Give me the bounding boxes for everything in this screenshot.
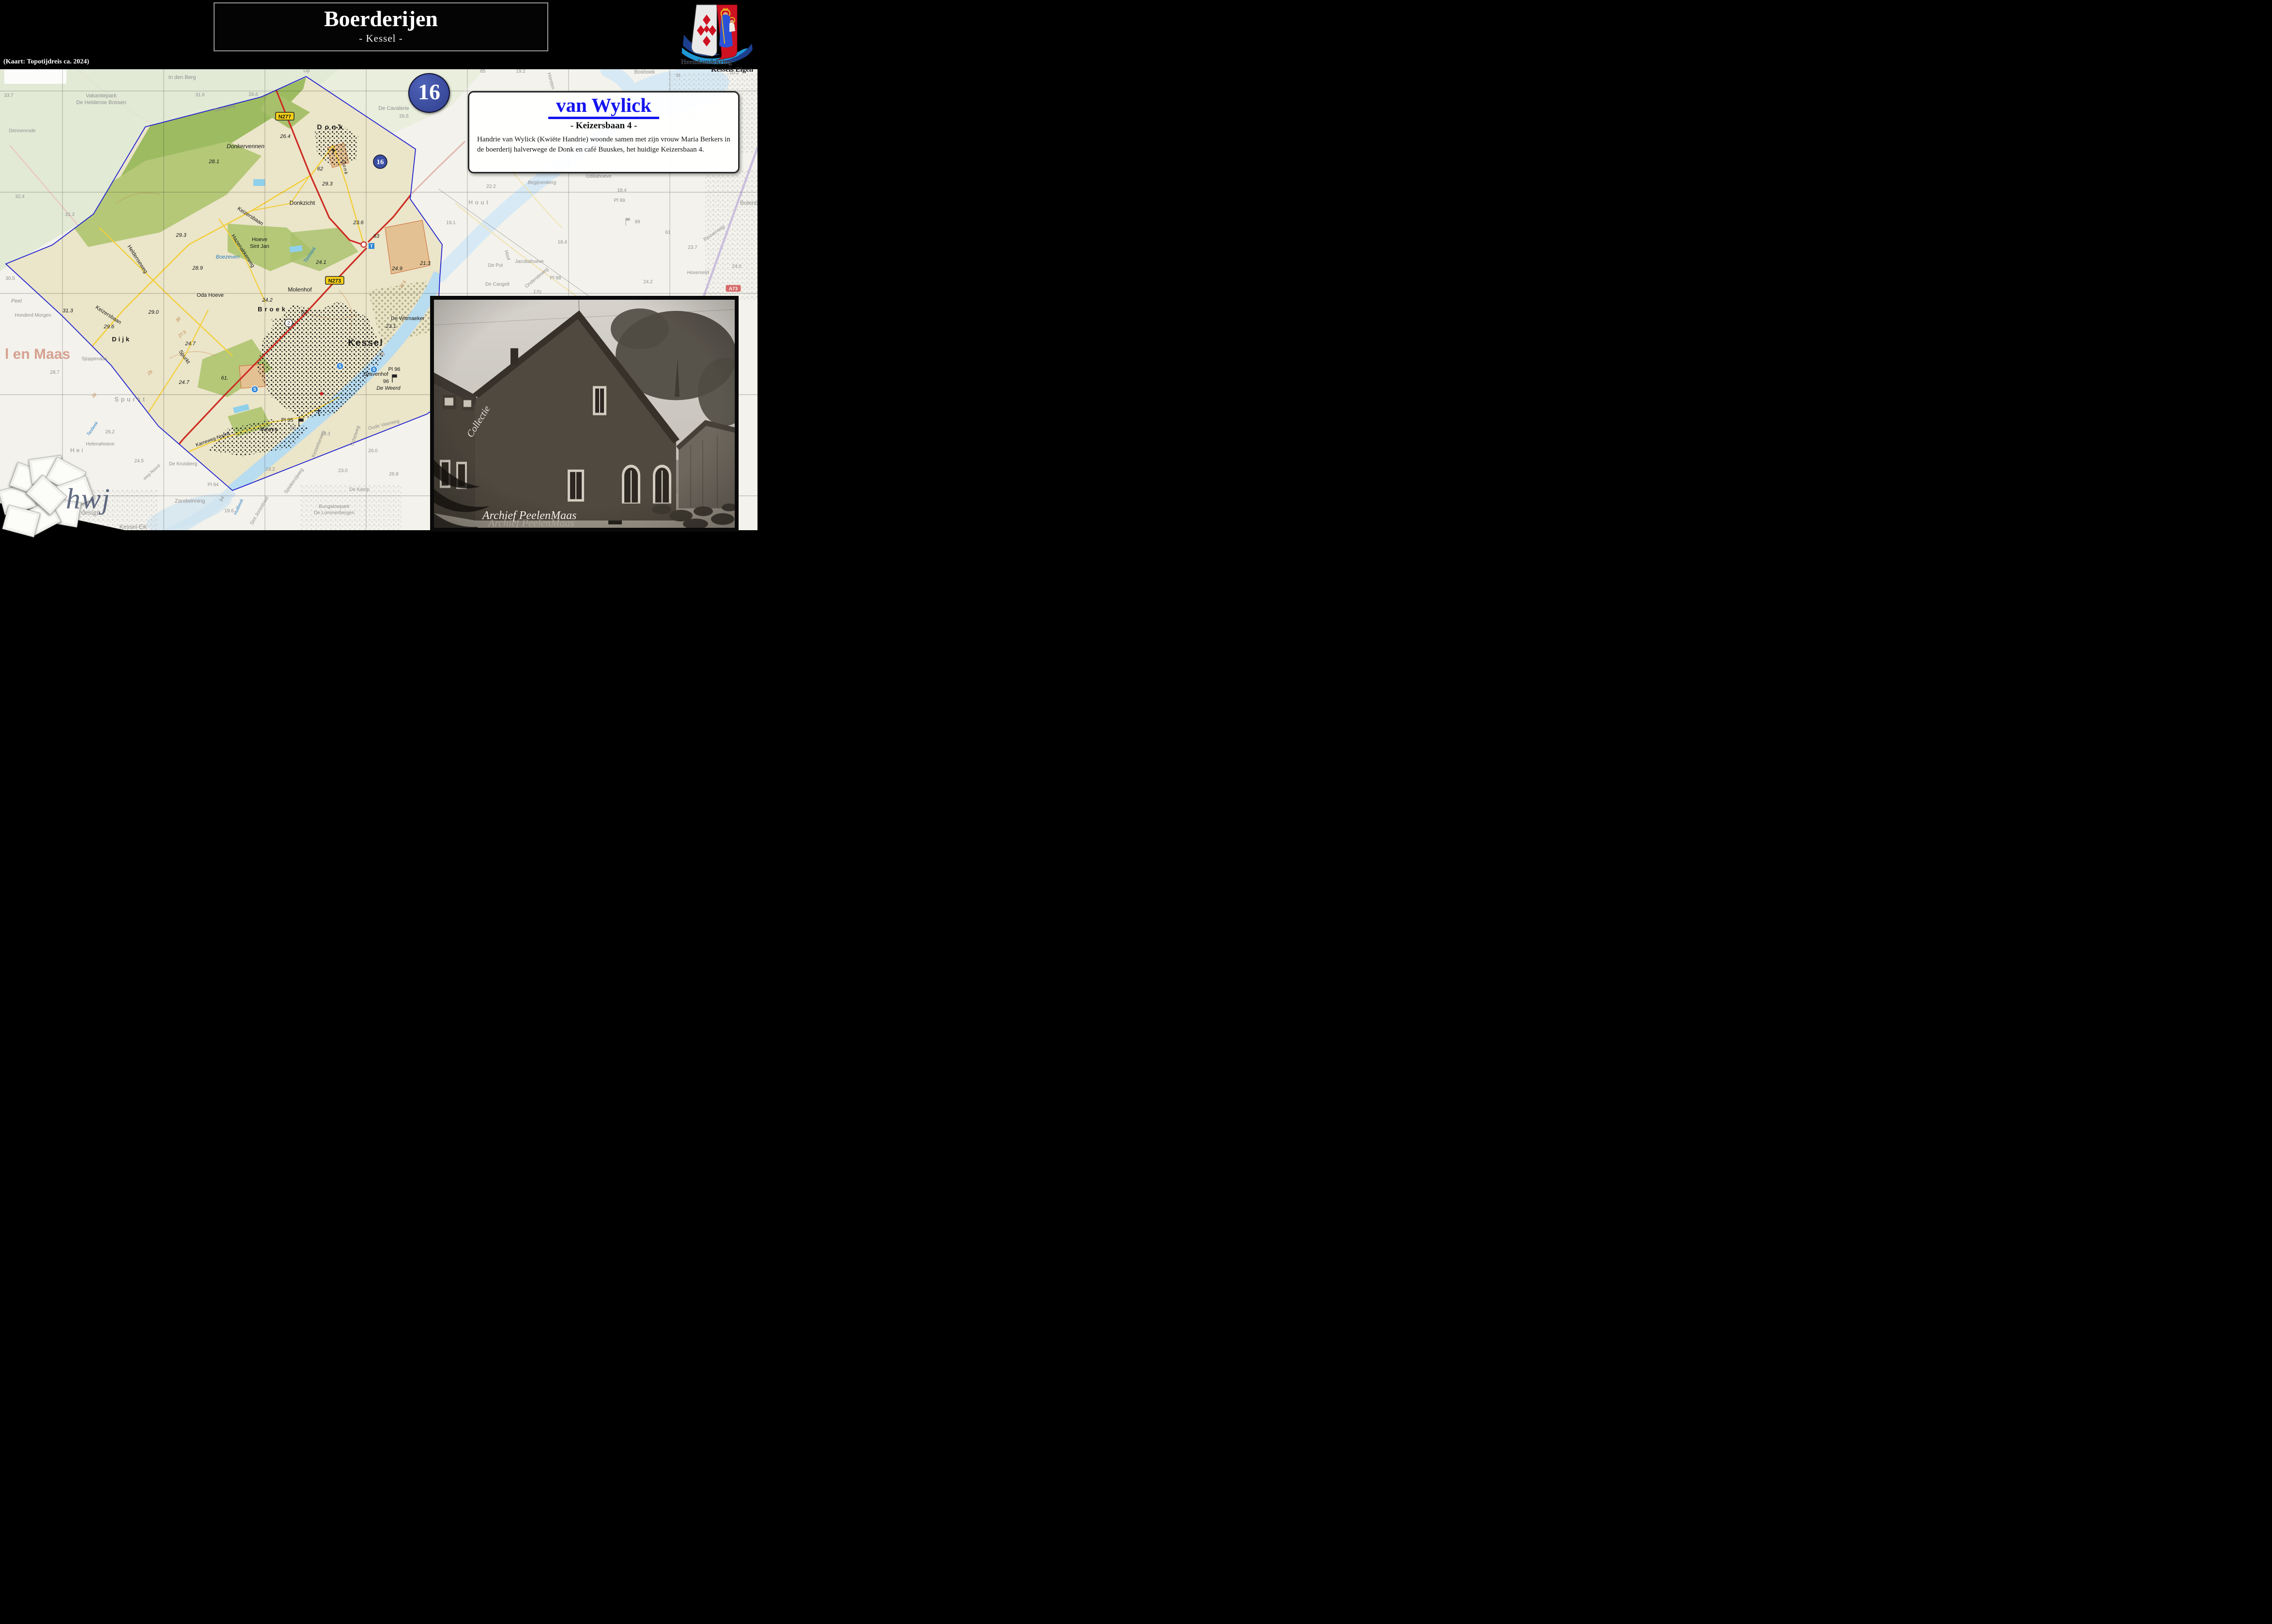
map-label: Pl 94 — [208, 482, 219, 488]
map-label: Sint Jan — [250, 244, 269, 249]
poi-red-dot — [320, 392, 324, 396]
map-label: 26.5 — [399, 114, 409, 119]
aroad-sign: A73 — [726, 285, 741, 292]
map-label: 28.1 — [208, 159, 219, 165]
map-label: Hoverveld — [687, 270, 709, 276]
historic-farm-photo: Collectie Archief PeelenMaas Archief Pee… — [430, 296, 739, 532]
map-label: Pl 95 — [281, 417, 293, 423]
map-label: Kessel-Eik — [120, 523, 148, 530]
map-label: 19.2 — [516, 69, 525, 74]
nroad-sign: N273 — [325, 276, 344, 284]
sign-label: S — [253, 387, 256, 392]
map-label: 29.3 — [175, 232, 186, 238]
map-label: Hoeve — [252, 237, 267, 243]
map-label: 26.0 — [368, 448, 378, 454]
map-label: Begijnenberg — [528, 180, 556, 185]
map-label: Spurkt — [114, 396, 147, 403]
map-label: 28.7 — [50, 370, 60, 375]
map-label: 20 — [378, 351, 384, 356]
map-label: 18.4 — [557, 240, 567, 245]
map-label: 21.3 — [419, 260, 431, 266]
map-label: 26.8 — [389, 472, 399, 477]
map-label: Dijk — [112, 336, 131, 343]
map-label: Hei — [70, 447, 85, 454]
map-label: 31.3 — [62, 308, 73, 314]
map-label: 99 — [634, 219, 640, 225]
map-label: 19.2 — [265, 467, 275, 472]
map-label: Molenhof — [288, 286, 312, 293]
map-label: Bungalowpark — [319, 504, 350, 509]
map-label: 28.6 — [248, 92, 258, 97]
bottom-black-bar — [0, 530, 757, 541]
header-band: Boerderijen - Kessel - — [0, 0, 757, 69]
map-label: 25.7 — [65, 470, 75, 475]
farm-name-link[interactable]: van Wylick — [548, 94, 659, 119]
map-label: De Kruisberg — [169, 461, 197, 467]
logo-org-tagline: Kessels Eigen — [711, 66, 754, 74]
map-label: Donkzicht — [290, 199, 315, 206]
map-label: 29.0 — [148, 309, 159, 315]
map-label: Kessel — [348, 338, 383, 348]
heemkundekring-logo: Heemkundekring Kessels Eigen — [679, 1, 755, 74]
sign-label: S — [339, 364, 341, 368]
sign-label: 2 — [287, 321, 290, 326]
slide: N277N273A73216SSST Gp6519.2HorstenBoshoe… — [0, 0, 757, 541]
map-label: Vakantiepark — [86, 93, 117, 99]
map-label: De Lommerbergen — [314, 510, 354, 516]
sign-label: N277 — [278, 114, 291, 120]
sign-label: A73 — [729, 287, 738, 292]
smark-sign: S — [337, 363, 343, 369]
map-label: Pl 99 — [614, 198, 625, 203]
map-label: De Cavalerie — [378, 106, 409, 111]
map-label: 65 — [480, 69, 486, 74]
map-label: De Put — [488, 263, 503, 268]
map-label: 30.5 — [5, 276, 15, 281]
map-label: SI — [676, 73, 680, 78]
map-label: 29.6 — [103, 324, 114, 330]
circle2-sign: 2 — [285, 319, 293, 327]
map-label: 62 — [301, 309, 307, 315]
map-label: 61. — [221, 375, 228, 381]
map-label: 26.2 — [105, 429, 115, 435]
map-label: 28.9 — [192, 265, 202, 271]
map-label: 61 — [665, 230, 671, 235]
map-label: 24.2 — [262, 297, 272, 303]
map-label: 23.7 — [688, 245, 697, 250]
badge-sign: 16 — [373, 155, 387, 169]
map-label: De Kamp — [349, 487, 370, 492]
smark-sign: S — [251, 386, 258, 393]
map-label: De Weerd — [376, 385, 401, 391]
map-source-caption: (Kaart: Topotijdreis ca. 2024) — [3, 58, 89, 66]
map-label: De Cangelt — [485, 282, 510, 287]
map-label: 24.0 — [732, 264, 742, 269]
map-label: Honderd Morgen — [15, 313, 51, 318]
logo-org-name: Heemkundekring — [681, 59, 732, 66]
sign-label: 16 — [377, 158, 385, 166]
map-label: Jacobahoeve — [515, 259, 544, 264]
title-box: Boerderijen - Kessel - — [214, 2, 548, 51]
map-label: 24.9 — [391, 266, 402, 272]
farm-info-card: van Wylick - Keizersbaan 4 - Handrie van… — [468, 91, 740, 173]
map-label: 96 — [383, 379, 389, 384]
map-label: Hout — [468, 199, 490, 206]
map-label: 63 — [373, 233, 380, 239]
farm-address: - Keizersbaan 4 - — [469, 121, 738, 131]
coat-of-arms — [692, 5, 737, 60]
map-label: 24.1 — [315, 260, 326, 265]
map-label: Veers — [260, 426, 278, 433]
map-label: 23.0 — [338, 468, 348, 474]
map-label: 22.2 — [486, 184, 496, 189]
map-label: Helenahoeve — [86, 442, 115, 447]
tmark-sign: T — [369, 243, 374, 249]
map-label: 18.4 — [617, 188, 627, 193]
location-number-badge: 16 — [408, 73, 450, 113]
map-label: 31.6 — [195, 92, 205, 98]
map-label: 62 — [317, 166, 323, 172]
map-label: 24.5 — [134, 459, 144, 464]
sign-label: T — [370, 244, 373, 249]
map-label: 23.6 — [353, 220, 364, 226]
map-label: Zandwinning — [175, 498, 205, 504]
farm-description: Handrie van Wylick (Kwiëte Handrie) woon… — [469, 131, 738, 154]
map-label: l en Maas — [5, 346, 70, 362]
map-label: Sjoppenaas — [82, 356, 108, 362]
map-label: Gravenhof — [363, 371, 388, 377]
map-label: Broek — [258, 306, 288, 313]
map-label: 95 — [290, 426, 296, 431]
map-label: 24.7 — [178, 380, 189, 385]
map-label: 29.3 — [322, 181, 333, 187]
map-label: Pl 96 — [388, 367, 400, 372]
map-label: De Heldense Bossen — [76, 100, 126, 106]
map-label: 23.1 — [385, 323, 396, 329]
map-label: 33.7 — [4, 93, 14, 98]
page-subtitle: - Kessel - — [215, 32, 547, 45]
map-label: In den Berg — [169, 75, 196, 80]
map-label: 24.2 — [643, 279, 653, 285]
map-label: De Witmaeker — [391, 316, 425, 322]
archive-credit-echo: Archief PeelenMaas — [487, 517, 574, 528]
page-title: Boerderijen — [215, 5, 547, 32]
map-label: Pl 98 — [550, 276, 561, 281]
map-label: Bolenberg — [740, 199, 757, 206]
map-label: 26.4 — [279, 134, 290, 139]
map-label: Donkervennen — [227, 143, 264, 150]
map-label: 32.4 — [15, 194, 25, 199]
nroad-sign: N277 — [276, 112, 294, 120]
map-label: Dennenrode — [9, 128, 35, 134]
map-label: Oda Hoeve — [197, 292, 224, 298]
map-label: Boezeven — [216, 254, 240, 260]
map-label: Peel — [11, 298, 22, 304]
map-label: Boshoek — [634, 69, 655, 75]
map-label: 19.1 — [446, 220, 456, 226]
sign-label: N273 — [328, 278, 341, 284]
map-label: Donk — [317, 123, 346, 131]
map-label: Odiliahoeve — [586, 174, 612, 179]
map-label: 24.7 — [185, 341, 196, 347]
map-label: 31.3 — [65, 212, 75, 217]
